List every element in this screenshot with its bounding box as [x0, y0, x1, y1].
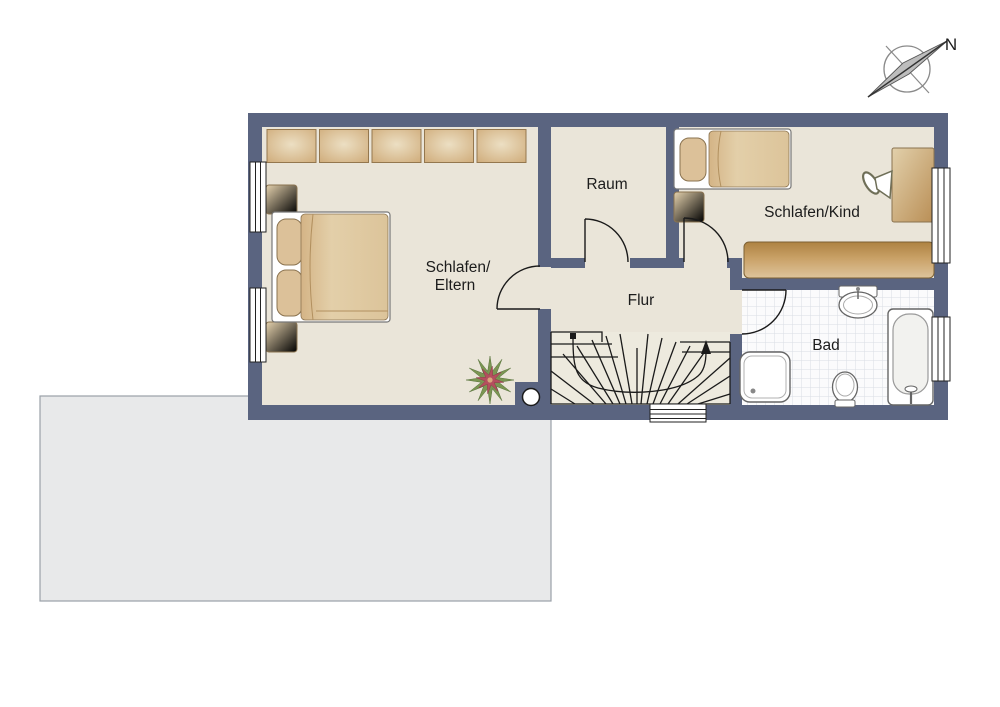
window-right-bathroom — [932, 317, 950, 381]
nightstand — [266, 185, 297, 214]
floor-plan-page: Schlafen/ Eltern Raum Schlafen/Kind Flur… — [0, 0, 1000, 707]
label-parents-bedroom-line1: Schlafen/ — [426, 259, 491, 276]
compass-rose-icon: N — [868, 35, 957, 97]
wardrobe-unit — [267, 130, 316, 163]
single-bed — [674, 129, 791, 189]
wall-kind-stub-right — [727, 258, 742, 268]
wall-bath-left-upper — [730, 268, 742, 290]
wall-bath-top — [742, 278, 934, 290]
window-right-child-room — [932, 168, 950, 263]
wall-raum-bottom-left — [551, 258, 585, 268]
wardrobe-unit — [320, 130, 369, 163]
wall-kind-stub-left — [679, 258, 684, 268]
round-column-symbol — [523, 389, 540, 406]
sink — [839, 286, 877, 318]
label-parents-bedroom-line2: Eltern — [435, 277, 476, 294]
duvet — [301, 214, 388, 320]
label-raum: Raum — [586, 176, 627, 193]
pillow — [277, 270, 302, 316]
window-bottom-stairwell — [650, 404, 706, 422]
lower-roof-outline — [40, 396, 551, 601]
wardrobe-unit — [425, 130, 474, 163]
window-left-lower — [250, 288, 266, 362]
pillow — [277, 219, 302, 265]
wardrobe-unit — [477, 130, 526, 163]
wall-raum-bottom-right — [630, 258, 666, 268]
shower — [740, 352, 790, 402]
desk — [892, 148, 934, 222]
wall-parents-upper — [538, 127, 551, 267]
window-left-upper — [250, 162, 266, 232]
bathtub — [888, 309, 933, 405]
floor-plan-canvas: Schlafen/ Eltern Raum Schlafen/Kind Flur… — [0, 0, 1000, 707]
toilet — [833, 372, 858, 407]
wardrobe-unit — [372, 130, 421, 163]
compass-north-label: N — [945, 35, 957, 54]
label-child-bedroom: Schlafen/Kind — [764, 204, 860, 221]
label-bathroom: Bad — [812, 337, 840, 354]
sideboard — [744, 242, 934, 278]
label-hallway: Flur — [628, 292, 655, 309]
nightstand — [674, 192, 704, 222]
duvet — [709, 131, 789, 187]
wardrobe-row — [267, 130, 526, 163]
pillow — [680, 138, 706, 181]
nightstand — [266, 322, 297, 352]
double-bed — [272, 212, 390, 322]
